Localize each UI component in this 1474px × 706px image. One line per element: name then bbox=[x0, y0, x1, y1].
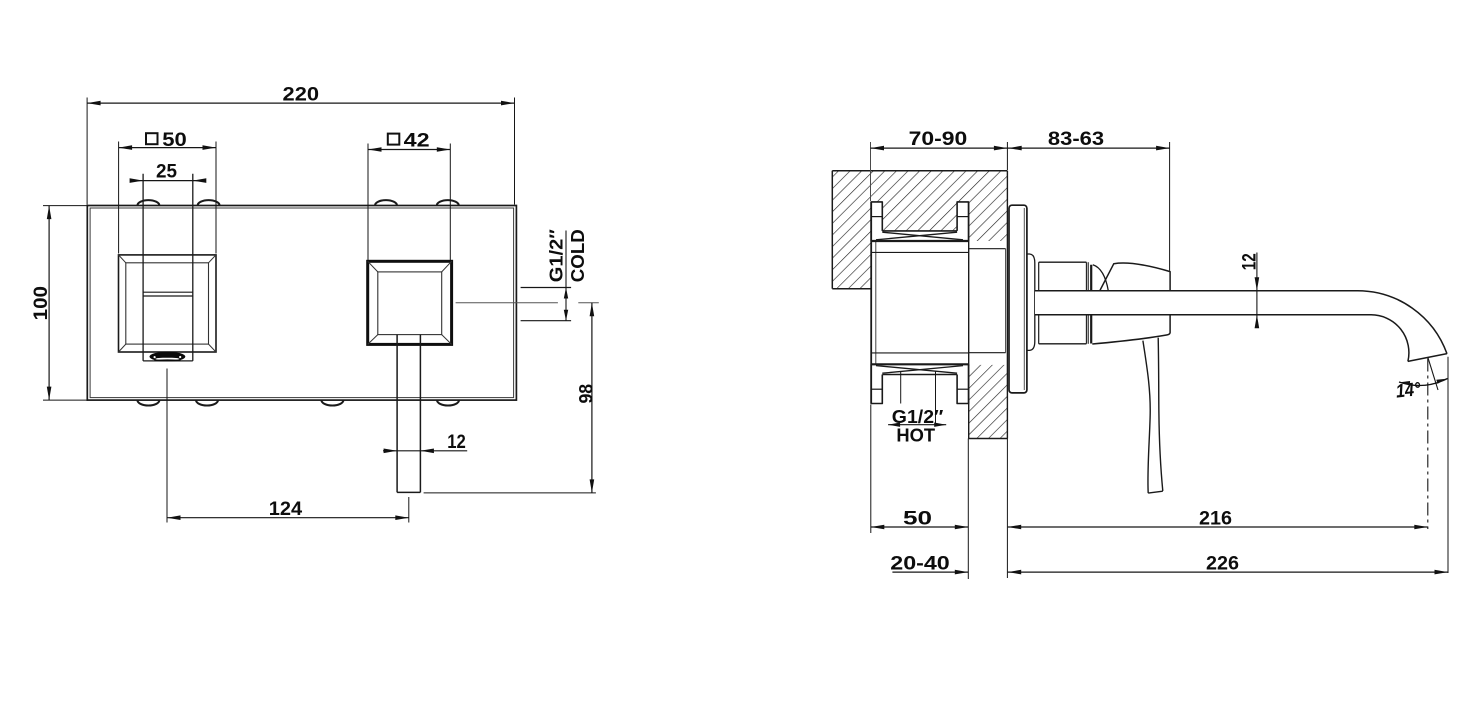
svg-text:100: 100 bbox=[30, 286, 52, 320]
svg-text:G1/2″: G1/2″ bbox=[892, 407, 944, 427]
svg-text:HOT: HOT bbox=[896, 426, 935, 446]
svg-text:226: 226 bbox=[1206, 552, 1239, 574]
svg-text:50: 50 bbox=[162, 129, 187, 151]
svg-text:14°: 14° bbox=[1395, 379, 1422, 403]
svg-text:83-63: 83-63 bbox=[1048, 128, 1104, 150]
svg-text:25: 25 bbox=[156, 161, 177, 183]
svg-text:20-40: 20-40 bbox=[890, 552, 950, 574]
svg-text:216: 216 bbox=[1199, 507, 1232, 529]
svg-text:220: 220 bbox=[283, 83, 320, 105]
svg-text:12: 12 bbox=[1238, 253, 1260, 270]
svg-text:98: 98 bbox=[575, 384, 597, 404]
svg-text:70-90: 70-90 bbox=[909, 128, 968, 150]
svg-text:12: 12 bbox=[447, 431, 466, 453]
svg-text:G1/2″: G1/2″ bbox=[547, 229, 567, 282]
svg-text:42: 42 bbox=[404, 129, 430, 151]
svg-text:124: 124 bbox=[269, 498, 303, 520]
svg-text:COLD: COLD bbox=[568, 229, 588, 282]
svg-text:50: 50 bbox=[903, 507, 932, 529]
